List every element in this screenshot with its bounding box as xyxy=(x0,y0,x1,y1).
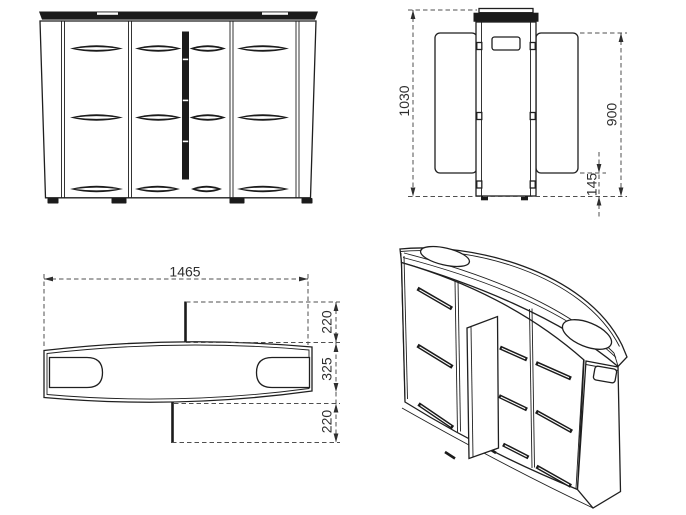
dim-label-1030: 1030 xyxy=(396,85,412,116)
dim-label-145: 145 xyxy=(584,173,600,197)
cabinet-drawing: 1030 900 145 xyxy=(0,0,686,515)
center-door-strip xyxy=(182,32,189,180)
dim-label-325: 325 xyxy=(319,357,335,381)
door-slab-left xyxy=(435,33,477,173)
light-recess-notch-left xyxy=(97,12,118,14)
iso-vent-hole xyxy=(593,366,617,384)
light-recess-right xyxy=(257,358,310,388)
front-view xyxy=(39,12,318,204)
dim-label-220-bottom: 220 xyxy=(319,410,335,434)
side-light-band xyxy=(474,13,539,21)
isometric-view xyxy=(400,243,627,508)
dimension-total-width: 1465 xyxy=(44,264,308,349)
dim-label-900: 900 xyxy=(604,103,620,127)
side-view: 1030 900 145 xyxy=(396,9,627,219)
dimension-panel-height: 900 xyxy=(580,33,627,197)
dimension-bottom-offset: 145 xyxy=(580,152,606,218)
dim-label-220-top: 220 xyxy=(319,310,335,334)
top-plate xyxy=(479,9,533,13)
dim-label-1465: 1465 xyxy=(169,264,200,280)
door-slab-right xyxy=(536,33,578,173)
iso-open-door xyxy=(467,317,499,459)
side-vent-hole xyxy=(492,37,520,50)
plan-view: 1465 220 325 220 xyxy=(44,264,340,444)
technical-drawing-canvas: 1030 900 145 xyxy=(0,0,686,515)
cabinet-feet xyxy=(48,198,313,204)
light-recess-notch-right xyxy=(262,12,288,14)
light-recess-left xyxy=(50,358,103,388)
